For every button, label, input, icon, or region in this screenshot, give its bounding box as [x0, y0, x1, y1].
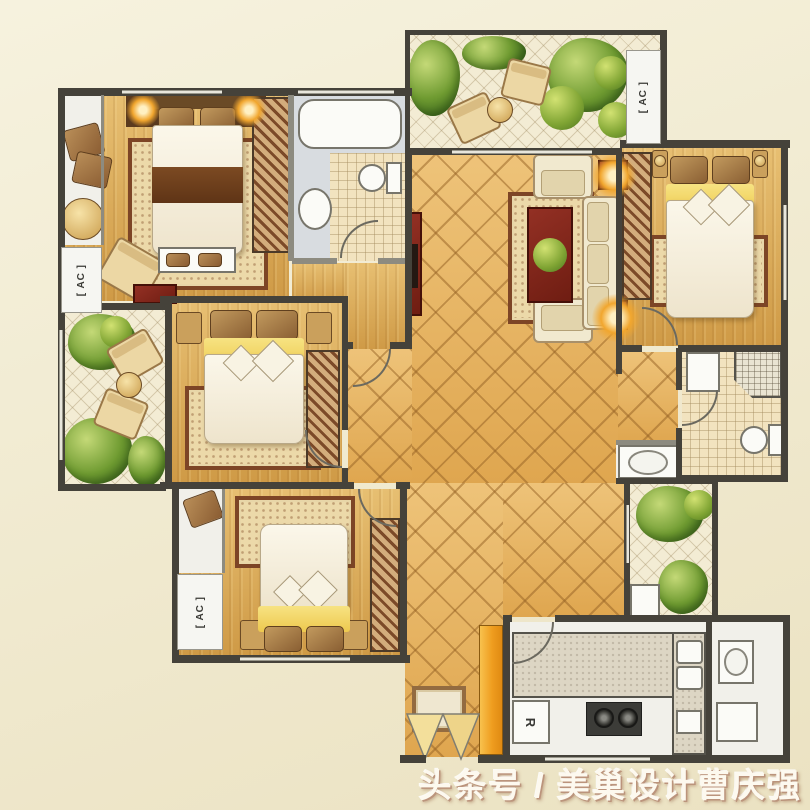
- washing-machine: [686, 352, 720, 392]
- wall: [58, 484, 166, 491]
- ac-unit: [ AC ]: [61, 247, 102, 313]
- bench-cushion: [198, 253, 222, 267]
- wall: [400, 755, 426, 763]
- chair-back: [510, 62, 547, 79]
- wall: [478, 755, 504, 763]
- wall: [676, 348, 682, 390]
- wall-light: [288, 95, 294, 261]
- wall: [676, 428, 682, 478]
- wall: [620, 345, 642, 352]
- wall: [405, 30, 667, 35]
- duvet: [666, 200, 754, 318]
- nook-ottoman: [62, 198, 104, 240]
- window: [783, 205, 787, 300]
- wall: [342, 468, 348, 489]
- nightstand: [176, 312, 202, 344]
- wall-light: [378, 258, 408, 264]
- wall: [781, 140, 788, 482]
- bathtub: [298, 99, 402, 149]
- laundry-basin: [724, 648, 748, 676]
- window: [298, 90, 394, 94]
- seat-cushion: [587, 202, 609, 242]
- master-toilet: [358, 162, 404, 194]
- fridge-label: R: [523, 717, 538, 726]
- toilet-bowl: [358, 164, 386, 192]
- wall: [678, 345, 788, 352]
- bush: [540, 86, 584, 130]
- nightstand: [306, 312, 332, 344]
- wall: [342, 296, 348, 430]
- floor-bath-corridor: [618, 352, 678, 444]
- bed-3: [258, 524, 350, 654]
- wall: [405, 30, 410, 152]
- wall: [555, 615, 790, 622]
- toilet-2: [740, 424, 786, 456]
- ac-label: [ AC ]: [638, 81, 649, 113]
- window: [59, 330, 63, 460]
- wall-light: [616, 440, 680, 445]
- master-bed: [150, 95, 245, 273]
- master-bath-sink: [298, 188, 332, 230]
- seat-cushion: [541, 305, 585, 331]
- wall: [660, 30, 667, 148]
- wall-light: [292, 258, 337, 264]
- wall: [706, 618, 712, 758]
- window: [240, 657, 350, 661]
- wall-light: [101, 95, 104, 245]
- bedside-lamp-glow: [126, 93, 160, 127]
- bedroom-3-wardrobe: [370, 518, 400, 652]
- wall: [712, 478, 718, 618]
- pillow: [256, 310, 298, 340]
- bench-cushion: [166, 253, 190, 267]
- balcony-table: [487, 97, 513, 123]
- window: [452, 150, 592, 154]
- window: [626, 505, 629, 563]
- bed-2: [202, 306, 306, 446]
- window: [122, 90, 222, 94]
- wall: [616, 352, 622, 374]
- burner: [594, 708, 614, 728]
- vanity-sink: [628, 450, 668, 475]
- seat-cushion: [587, 244, 609, 284]
- wall: [160, 296, 348, 303]
- floor-master-corridor-2: [345, 263, 407, 349]
- right-bed: [664, 150, 756, 322]
- window: [545, 757, 650, 761]
- wall-light: [222, 489, 225, 573]
- ac-unit: [ AC ]: [626, 50, 661, 144]
- pillow: [670, 156, 708, 184]
- burner: [618, 708, 638, 728]
- ac-label: [ AC ]: [195, 596, 206, 628]
- toilet-tank: [386, 162, 402, 194]
- floor-plan: R: [0, 0, 810, 810]
- balcony-table: [116, 372, 142, 398]
- wall: [503, 615, 510, 763]
- wall: [160, 482, 354, 489]
- pillow: [210, 310, 252, 340]
- dishwasher: [676, 710, 702, 734]
- wall: [400, 482, 407, 663]
- watermark: 头条号 / 美巢设计曹庆强: [418, 764, 802, 808]
- pillow: [306, 626, 344, 652]
- master-blanket: [152, 167, 243, 203]
- water-heater: [716, 702, 758, 742]
- kitchen-sink: [676, 666, 703, 690]
- pillow: [264, 626, 302, 652]
- wall: [405, 148, 412, 348]
- ac-unit: [ AC ]: [177, 574, 223, 650]
- ac-label: [ AC ]: [76, 264, 87, 296]
- pillow: [712, 156, 750, 184]
- floor-lamp-glow: [592, 154, 636, 198]
- fridge: R: [512, 700, 550, 744]
- wall: [616, 148, 622, 354]
- armchair: [533, 154, 593, 199]
- floor-dining: [503, 483, 626, 617]
- bush: [684, 490, 714, 520]
- wall: [783, 615, 790, 763]
- duvet: [260, 524, 348, 610]
- kitchen-sink: [676, 640, 703, 664]
- bedside-lamp-glow: [232, 93, 266, 127]
- wall: [165, 300, 172, 489]
- seat-cushion: [541, 170, 585, 196]
- wall: [682, 475, 788, 482]
- flower-arrangement: [533, 238, 567, 272]
- toilet-bowl: [740, 426, 768, 454]
- bush: [594, 56, 628, 90]
